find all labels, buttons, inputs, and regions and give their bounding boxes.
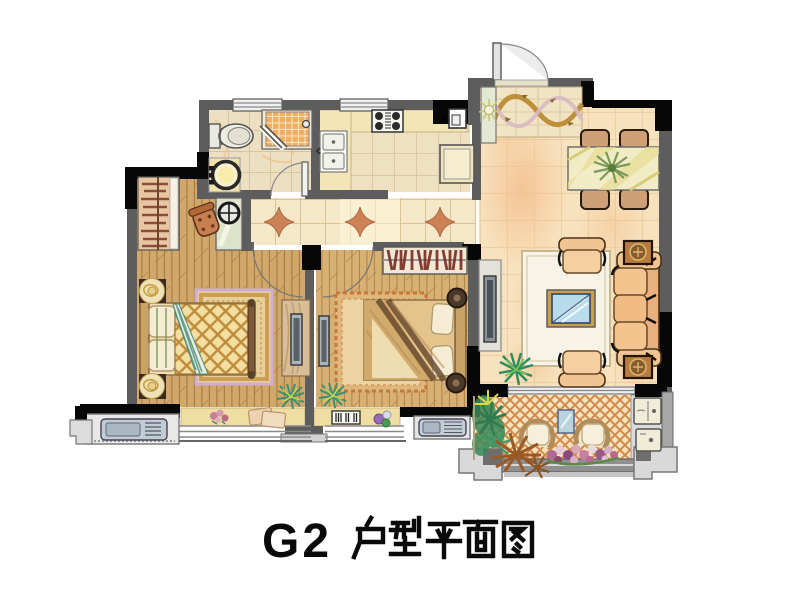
- svg-text:G2: G2: [262, 515, 332, 568]
